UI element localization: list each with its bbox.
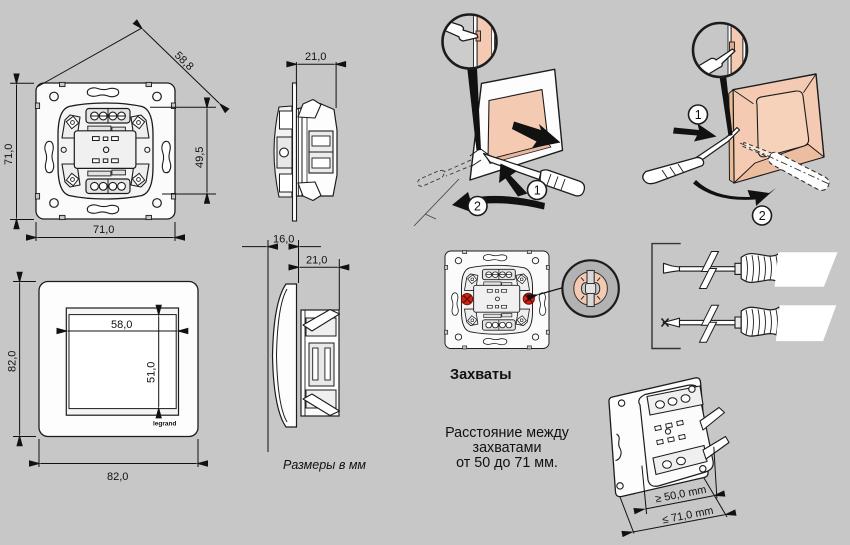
svg-text:Расстояние между: Расстояние между (445, 425, 570, 441)
svg-text:82,0: 82,0 (107, 471, 128, 483)
svg-text:71,0: 71,0 (3, 144, 15, 165)
svg-text:1: 1 (534, 184, 541, 198)
svg-text:от 50 до 71 мм.: от 50 до 71 мм. (456, 455, 558, 471)
svg-text:1: 1 (695, 108, 702, 122)
svg-text:2: 2 (474, 200, 481, 214)
svg-text:21,0: 21,0 (306, 255, 327, 267)
svg-text:legrand: legrand (153, 421, 177, 428)
svg-text:Размеры в мм: Размеры в мм (283, 458, 366, 472)
svg-text:21,0: 21,0 (305, 51, 326, 63)
svg-text:51,0: 51,0 (146, 362, 158, 383)
svg-text:Захваты: Захваты (450, 367, 511, 383)
svg-text:71,0: 71,0 (93, 224, 114, 236)
svg-text:захватами: захватами (473, 440, 542, 456)
svg-text:58,0: 58,0 (111, 319, 132, 331)
svg-text:16,0: 16,0 (273, 234, 294, 246)
svg-text:2: 2 (759, 209, 766, 223)
svg-text:49,5: 49,5 (194, 147, 206, 168)
svg-text:82,0: 82,0 (7, 351, 19, 372)
